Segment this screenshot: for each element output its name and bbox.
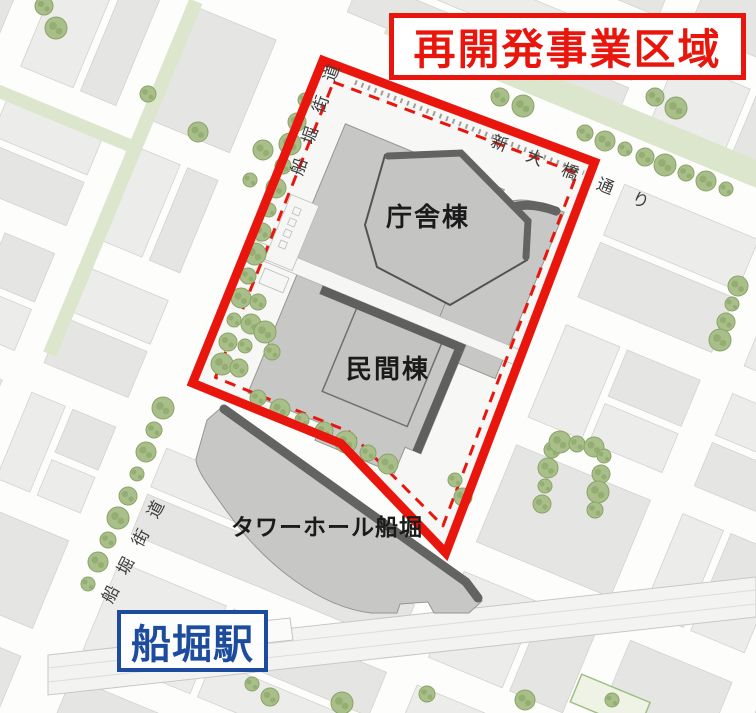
tree-icon [597, 449, 611, 463]
tree-icon [360, 445, 376, 461]
tree-icon [264, 344, 280, 360]
tree-icon [719, 182, 733, 196]
city-block [476, 445, 650, 597]
city-block [694, 443, 756, 529]
tree-icon [331, 692, 353, 713]
tree-icon [512, 95, 534, 117]
tree-icon [238, 339, 252, 353]
city-block [727, 695, 756, 713]
tree-icon [254, 321, 276, 343]
tree-icon [243, 173, 257, 187]
tree-icon [261, 688, 279, 706]
tree-icon [152, 397, 174, 419]
tree-icon [253, 140, 273, 160]
tree-icon [592, 465, 610, 483]
tree-icon [119, 487, 137, 505]
government-building-label: 庁舎棟 [386, 197, 470, 234]
tree-icon [448, 473, 462, 487]
tree-icon [219, 333, 237, 351]
tree-icon [587, 502, 603, 518]
city-block [55, 409, 116, 470]
tree-icon [136, 442, 156, 462]
title-badge: 再開発事業区域 [389, 13, 746, 80]
tree-icon [140, 86, 156, 102]
tree-icon [130, 467, 144, 481]
tree-icon [725, 297, 739, 311]
private-building-label: 民間棟 [346, 349, 430, 386]
tree-icon [491, 88, 509, 106]
title-text: 再開発事業区域 [413, 16, 721, 77]
tree-icon [515, 690, 535, 710]
tree-icon [605, 693, 619, 707]
tree-icon [419, 686, 435, 702]
tree-icon [538, 458, 558, 478]
tree-icon [100, 532, 116, 548]
tree-icon [646, 88, 664, 106]
tree-icon [146, 422, 162, 438]
tree-icon [569, 436, 585, 452]
tree-icon [549, 431, 571, 453]
tree-icon [107, 507, 129, 529]
city-block [0, 644, 21, 713]
tree-icon [595, 131, 615, 151]
tree-icon [45, 17, 67, 39]
tree-icon [245, 677, 259, 691]
tree-icon [717, 313, 735, 331]
city-block [0, 233, 55, 302]
tree-icon [654, 154, 676, 176]
tree-icon [533, 495, 551, 513]
tower-hall-label: タワーホール船堀 [231, 508, 423, 542]
city-block [0, 506, 69, 629]
tree-icon [709, 329, 731, 351]
tree-icon [577, 125, 593, 141]
tree-icon [618, 142, 632, 156]
city-block [744, 253, 756, 389]
tree-icon [696, 171, 716, 191]
tree-icon [538, 479, 552, 493]
tree-icon [211, 353, 233, 375]
tree-icon [88, 552, 108, 572]
city-block [0, 341, 2, 466]
tree-icon [227, 313, 241, 327]
tree-icon [378, 454, 398, 474]
tree-icon [587, 481, 609, 503]
redevelopment-area-map: 新大橋通り 船堀街道 船堀街道 庁舎棟 民間棟 タワーホール船堀 再開発事業区域… [0, 0, 756, 713]
tree-icon [35, 0, 53, 15]
tree-icon [728, 276, 748, 296]
city-block [0, 0, 14, 54]
station-badge: 船堀駅 [117, 610, 268, 672]
tree-icon [636, 148, 654, 166]
station-text: 船堀駅 [131, 612, 254, 670]
tree-icon [81, 577, 95, 591]
city-block [37, 460, 95, 513]
tree-icon [665, 97, 687, 119]
tree-icon [230, 359, 248, 377]
tree-icon [250, 294, 266, 310]
tree-icon [678, 165, 694, 181]
tree-icon [188, 122, 208, 142]
